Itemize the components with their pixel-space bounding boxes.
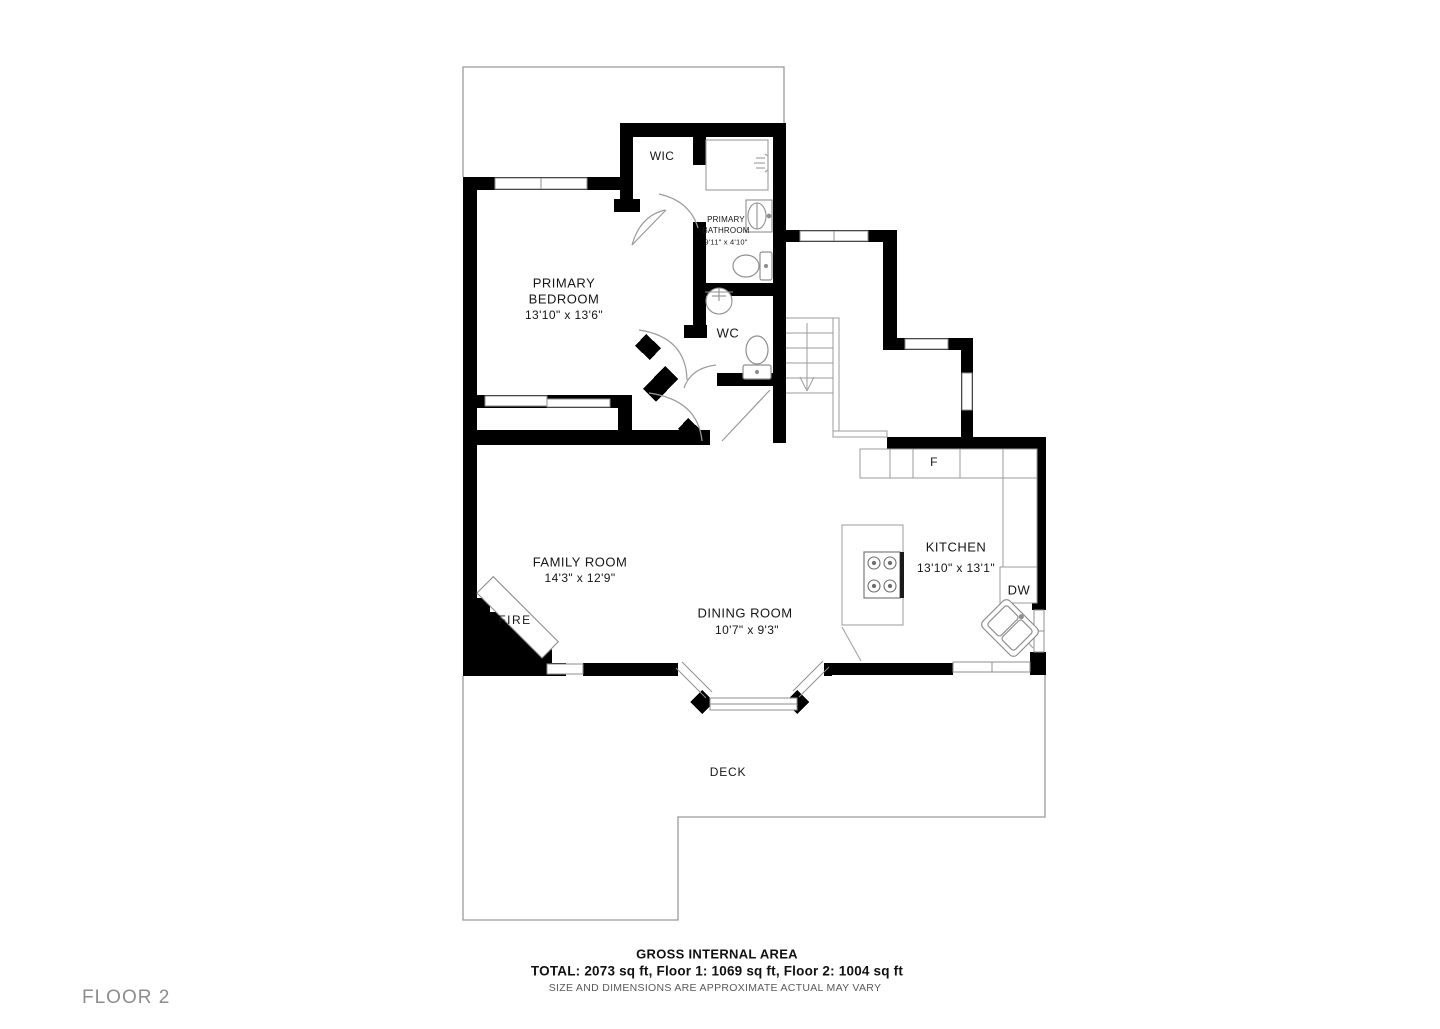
wc-door-arc: [684, 365, 716, 388]
understair-door-leaf: [722, 390, 770, 441]
counter-top-run: [860, 449, 1037, 478]
wc-sink-icon: [705, 288, 733, 314]
wc-toilet-icon: [743, 336, 771, 379]
wic-door-leaf: [632, 210, 666, 245]
fixture-label-fridge: F: [930, 456, 938, 468]
room-dims-dining-room: 10'7" x 9'3": [715, 624, 779, 636]
shower-icon: [706, 140, 768, 190]
room-label-kitchen: KITCHEN: [926, 541, 987, 554]
room-label-wic: WIC: [650, 150, 675, 162]
bathroom-sink-icon: [746, 200, 772, 232]
gross-internal-area-title: GROSS INTERNAL AREA: [636, 947, 798, 962]
counter-right-run: [1003, 478, 1037, 567]
area-totals: TOTAL: 2073 sq ft, Floor 1: 1069 sq ft, …: [531, 964, 903, 979]
room-label-dining-room: DINING ROOM: [697, 607, 792, 620]
floorplan-page: WIC PRIMARY BATHROOM 9'11" x 4'10" PRIMA…: [0, 0, 1440, 1029]
room-dims-kitchen: 13'10" x 13'1": [917, 562, 995, 574]
room-label-primary-bedroom-1: PRIMARY: [533, 277, 596, 290]
stair-railing: [833, 318, 839, 437]
fixture-label-dishwasher: DW: [1008, 584, 1031, 597]
size-disclaimer: SIZE AND DIMENSIONS ARE APPROXIMATE ACTU…: [549, 982, 882, 994]
room-label-wc: WC: [717, 327, 740, 340]
room-label-primary-bathroom-1: PRIMARY: [707, 216, 745, 224]
floorplan-canvas: [0, 0, 1440, 1029]
room-dims-primary-bathroom: 9'11" x 4'10": [704, 238, 747, 246]
kitchen-sink-icon: [980, 598, 1041, 659]
stair-railing-return: [833, 431, 887, 437]
room-label-primary-bedroom-2: BEDROOM: [529, 293, 600, 306]
stove-icon: [864, 552, 904, 598]
room-label-deck: DECK: [710, 766, 747, 778]
room-dims-family-room: 14'3" x 12'9": [544, 572, 615, 584]
stairs: [786, 318, 887, 437]
room-label-family-room: FAMILY ROOM: [533, 556, 628, 569]
floor-label: FLOOR 2: [82, 987, 170, 1009]
deck-outline: [463, 675, 1045, 920]
fixture-label-fireplace: FIRE: [498, 614, 531, 626]
room-label-primary-bathroom-2: BATHROOM: [702, 227, 749, 235]
room-dims-primary-bedroom: 13'10" x 13'6": [525, 309, 603, 321]
bathroom-toilet-icon: [733, 252, 772, 280]
